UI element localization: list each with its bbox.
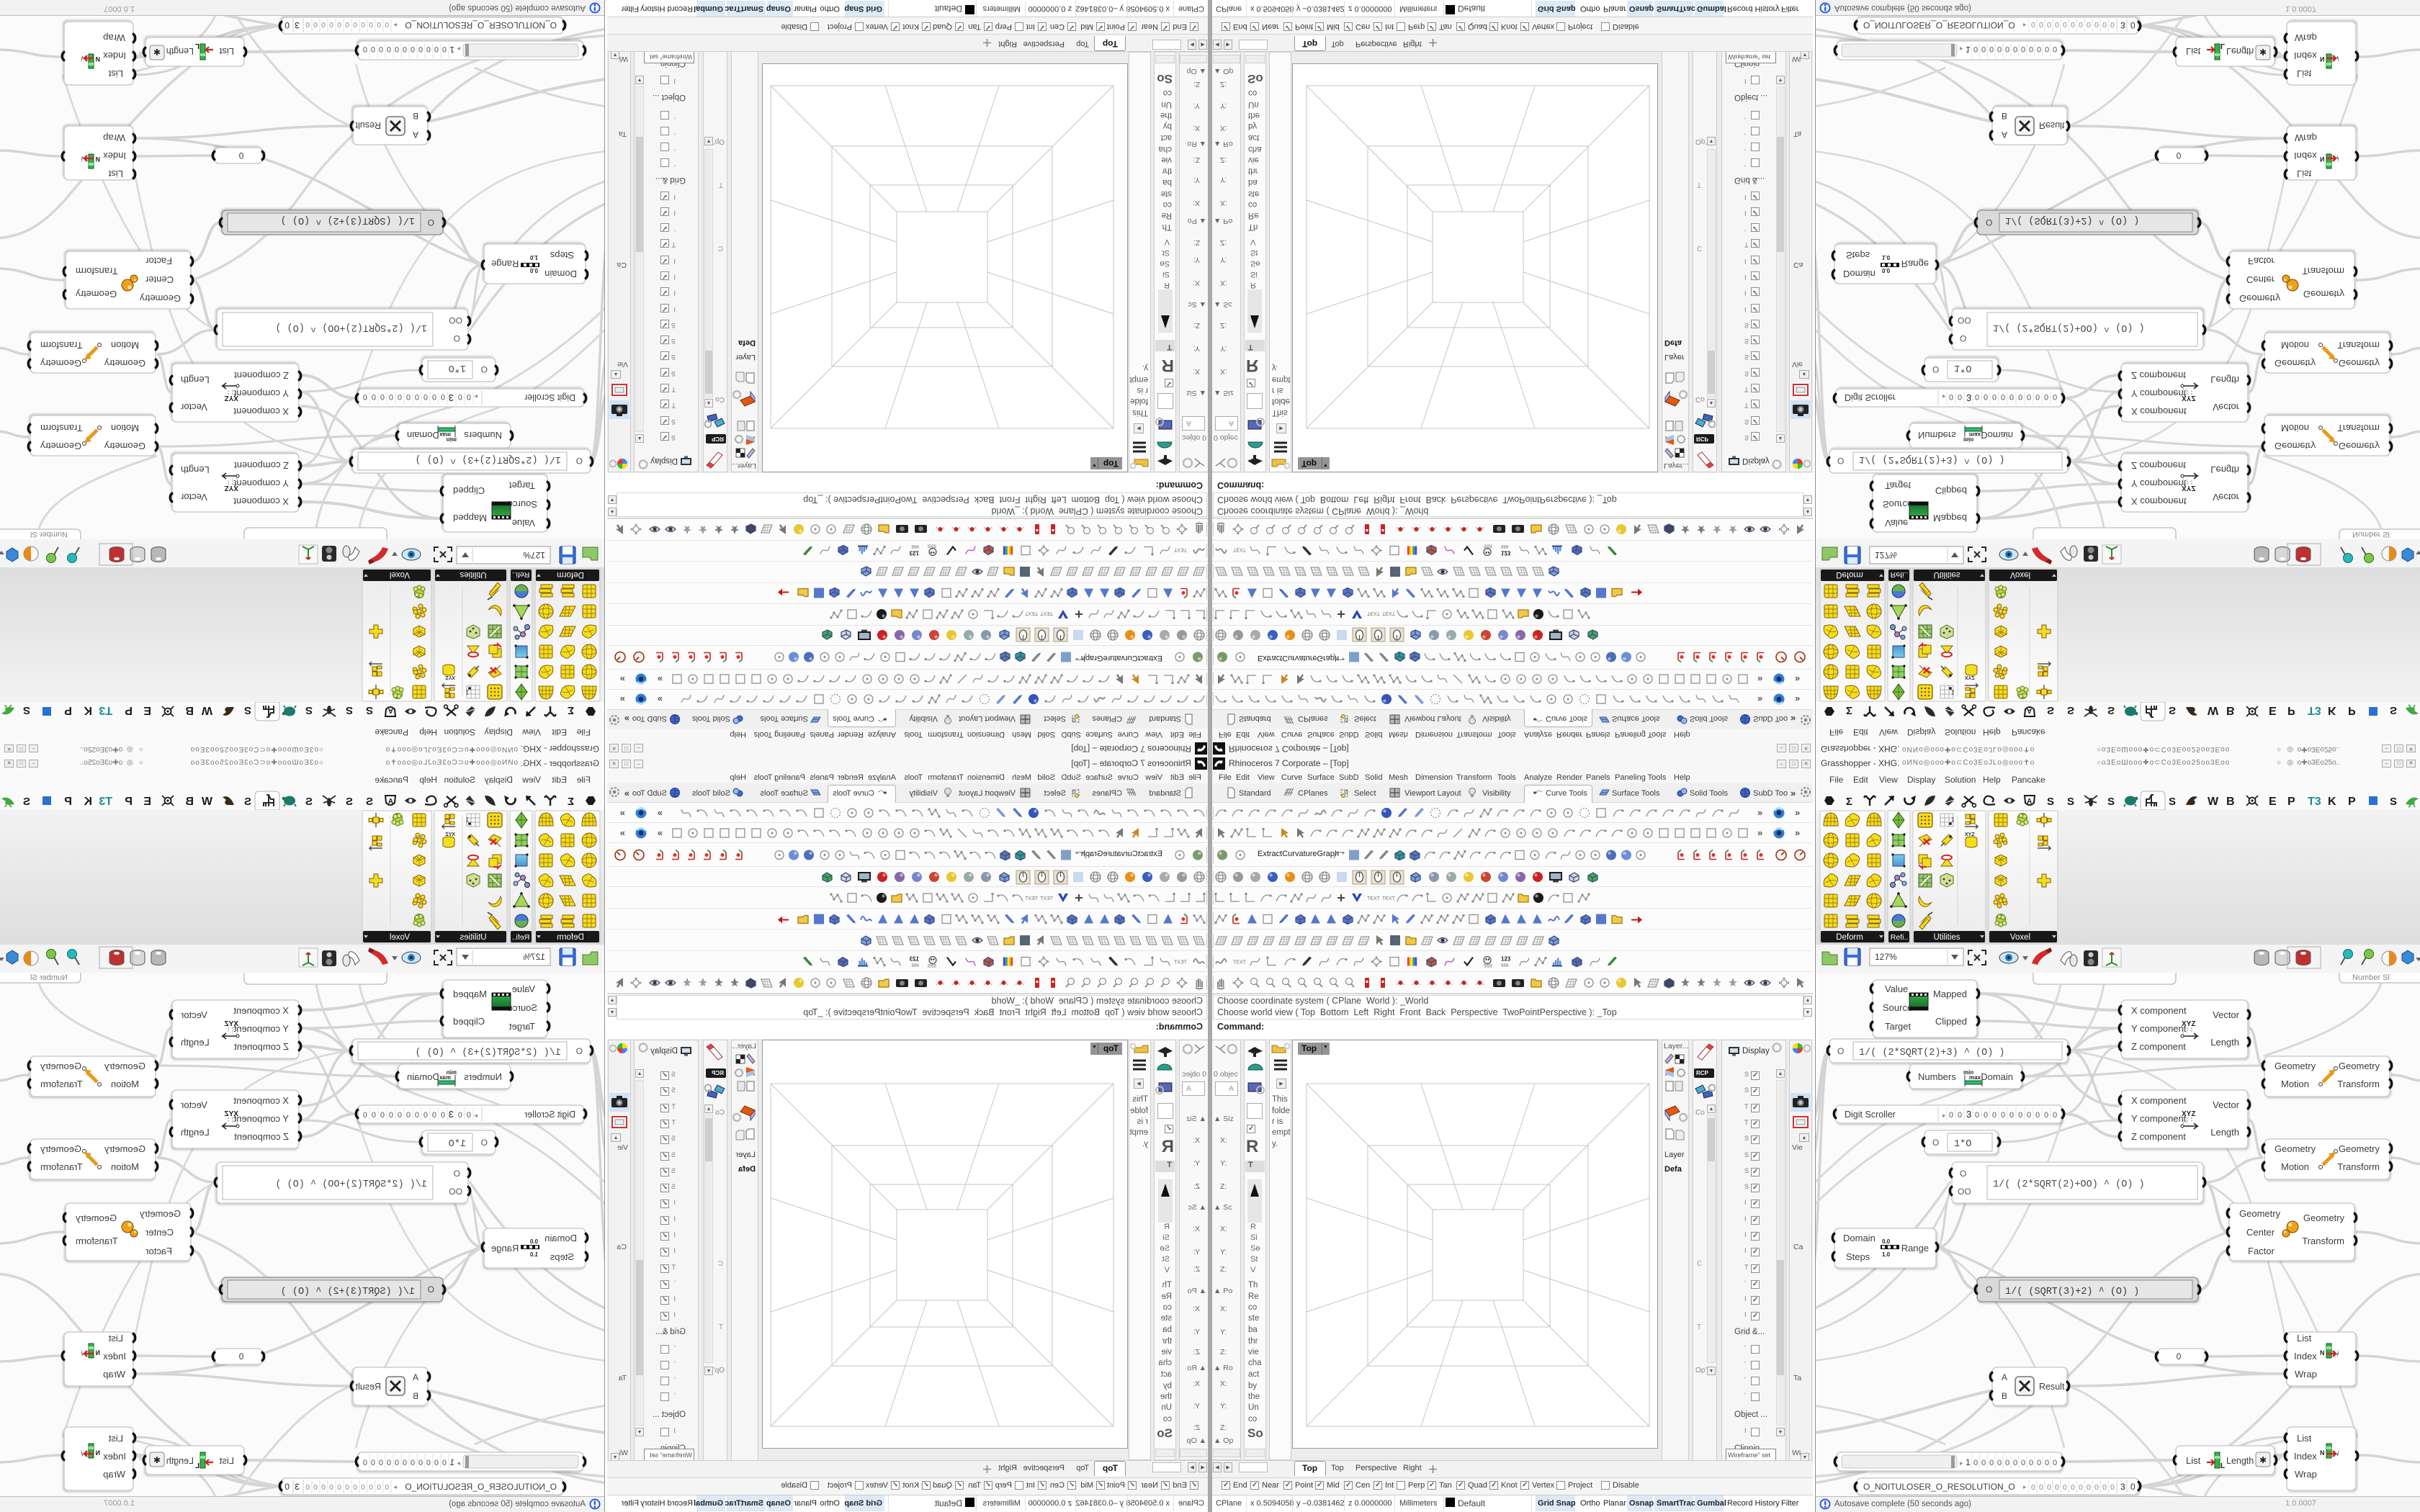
svg-text:sss: sss [911, 963, 919, 968]
svg-text:0: 0 [371, 45, 375, 53]
svg-text:P: P [64, 796, 72, 808]
svg-text:1/( (2*SQRT(2)+3) ^ (O) ): 1/( (2*SQRT(2)+3) ^ (O) ) [415, 454, 561, 464]
svg-text:Z component: Z component [234, 1041, 289, 1052]
svg-text:O: O [1932, 364, 1939, 374]
svg-text:0: 0 [2037, 1459, 2041, 1467]
svg-text:O: O [1837, 1046, 1844, 1056]
svg-text:0: 0 [377, 20, 381, 29]
svg-text:0: 0 [1973, 45, 1978, 53]
svg-text:N: N [96, 156, 101, 163]
svg-text:✱: ✱ [153, 1455, 161, 1465]
svg-text:0: 0 [2102, 1483, 2107, 1492]
svg-text:0: 0 [389, 1111, 393, 1120]
svg-text:T3: T3 [99, 704, 112, 716]
svg-text:Y component: Y component [233, 1023, 289, 1034]
svg-text:▸: ▸ [393, 22, 397, 29]
svg-text:E: E [2269, 796, 2277, 808]
svg-text:Transform: Transform [2302, 1236, 2344, 1246]
svg-text:▸: ▸ [2023, 1483, 2027, 1490]
svg-text:0: 0 [2053, 1111, 2057, 1120]
svg-text:0.0: 0.0 [1882, 267, 1891, 274]
svg-text:Transform: Transform [2337, 340, 2380, 351]
svg-text:Source: Source [1883, 499, 1912, 510]
svg-text:0: 0 [1989, 1459, 1994, 1467]
svg-text:W: W [201, 704, 212, 716]
svg-text:S: S [244, 796, 251, 808]
svg-text:0: 0 [337, 20, 341, 29]
svg-text:✱: ✱ [2259, 47, 2267, 57]
svg-text:Index: Index [103, 50, 126, 61]
svg-text:max: max [439, 431, 451, 438]
svg-text:P: P [2348, 704, 2356, 716]
svg-text:Range: Range [491, 258, 519, 269]
svg-text:»: » [1757, 694, 1762, 705]
svg-text:W: W [201, 796, 212, 808]
svg-text:»: » [1795, 827, 1800, 838]
svg-text:0: 0 [442, 45, 447, 53]
svg-text:Length: Length [181, 1127, 210, 1138]
svg-text:Geometry: Geometry [2239, 293, 2281, 304]
svg-text:List: List [108, 168, 123, 179]
svg-text:0: 0 [337, 1483, 341, 1492]
svg-text:XYZ: XYZ [2182, 394, 2195, 402]
svg-text:▸: ▸ [1942, 1112, 1946, 1119]
svg-text:0: 0 [406, 1111, 411, 1120]
svg-text:123: 123 [1501, 956, 1511, 963]
svg-text:O: O [1932, 1138, 1939, 1148]
svg-text:K: K [2328, 796, 2336, 808]
svg-text:Numbers: Numbers [1918, 430, 1956, 441]
svg-text:0: 0 [2029, 45, 2033, 53]
svg-text:SSS: SSS [1484, 544, 1492, 548]
svg-text:max: max [439, 1074, 451, 1081]
svg-text:Clipped: Clipped [1935, 1016, 1967, 1027]
svg-text:»: » [1757, 827, 1762, 838]
svg-text:0: 0 [2031, 1483, 2035, 1492]
svg-text:Center: Center [145, 1227, 174, 1238]
svg-text:Geometry: Geometry [2339, 1061, 2380, 1071]
svg-text:0: 0 [353, 20, 357, 29]
svg-text:TEXT: TEXT [1173, 960, 1187, 966]
svg-text:0: 0 [321, 20, 326, 29]
svg-text:Range: Range [491, 1243, 519, 1254]
svg-text:0: 0 [406, 392, 411, 401]
svg-text:Geometry: Geometry [40, 358, 82, 369]
svg-text:Range: Range [1901, 1243, 1929, 1254]
svg-text:0: 0 [305, 1483, 310, 1492]
svg-text:S: S [366, 704, 373, 716]
svg-text:Number Sl: Number Sl [2352, 973, 2390, 982]
svg-text:Geometry: Geometry [40, 1143, 82, 1154]
svg-text:0: 0 [387, 45, 391, 53]
svg-text:Utilities: Utilities [460, 570, 486, 579]
svg-text:Vector: Vector [180, 1099, 207, 1110]
svg-text:1: 1 [465, 689, 469, 696]
svg-text:Z component: Z component [234, 370, 289, 381]
svg-text:0: 0 [415, 1111, 419, 1120]
svg-text:0: 0 [377, 1483, 381, 1492]
svg-text:0: 0 [2009, 1111, 2014, 1120]
svg-text:0: 0 [1997, 45, 2002, 53]
svg-text:Factor: Factor [2248, 256, 2275, 266]
svg-text:N: N [2320, 1349, 2325, 1356]
svg-text:Y component: Y component [233, 388, 289, 399]
svg-text:max: max [1969, 1074, 1981, 1081]
svg-text:1: 1 [1951, 689, 1955, 696]
svg-text:0: 0 [361, 20, 365, 29]
svg-text:S: S [2067, 796, 2074, 808]
svg-text:0: 0 [1958, 1111, 1962, 1120]
svg-text:✱: ✱ [2259, 1455, 2267, 1465]
svg-text:Clipped: Clipped [1935, 485, 1967, 496]
svg-text:N: N [2320, 1449, 2325, 1457]
svg-text:TEXT: TEXT [1233, 547, 1247, 552]
svg-text:127%: 127% [523, 550, 545, 560]
svg-text:Index: Index [103, 1351, 126, 1362]
svg-text:Motion: Motion [2281, 1161, 2309, 1172]
svg-text:Geometry: Geometry [104, 441, 145, 451]
svg-text:Length: Length [181, 1037, 210, 1048]
svg-text:XYZ: XYZ [2182, 1020, 2195, 1028]
svg-text:P: P [2287, 796, 2295, 808]
svg-text:Wrap: Wrap [2295, 32, 2317, 43]
svg-text:0: 0 [371, 1459, 375, 1467]
svg-text:0: 0 [2055, 20, 2059, 29]
svg-text:0: 0 [329, 1483, 333, 1492]
svg-text:0: 0 [403, 45, 407, 53]
svg-text:0: 0 [395, 45, 399, 53]
svg-text:0: 0 [284, 1482, 290, 1492]
svg-text:0: 0 [423, 392, 428, 401]
svg-text:0: 0 [2027, 1111, 2031, 1120]
svg-text:TEXT: TEXT [1173, 547, 1187, 552]
svg-text:Target: Target [508, 480, 535, 491]
svg-text:0: 0 [2021, 1459, 2025, 1467]
svg-text:XYZ: XYZ [225, 1110, 238, 1118]
svg-text:sss: sss [1501, 544, 1509, 549]
svg-text:Domain: Domain [407, 430, 439, 441]
svg-text:1/( (2*SQRT(2)+OO) ^ (O) ): 1/( (2*SQRT(2)+OO) ^ (O) ) [1993, 322, 2145, 333]
svg-text:1: 1 [1966, 1457, 1971, 1467]
svg-text:0: 0 [395, 1459, 399, 1467]
svg-text:0: 0 [2071, 1483, 2075, 1492]
svg-text:1*O: 1*O [1954, 1139, 1971, 1150]
svg-text:Factor: Factor [145, 256, 172, 266]
svg-text:W: W [2208, 704, 2219, 716]
svg-text:0: 0 [1997, 1459, 2002, 1467]
svg-text:TEXT: TEXT [1367, 896, 1381, 901]
svg-text:Refi..: Refi.. [512, 570, 530, 579]
svg-text:List: List [2297, 68, 2312, 79]
svg-text:Refi..: Refi.. [512, 933, 530, 942]
svg-text:123: 123 [909, 550, 919, 557]
svg-text:0: 0 [2047, 1483, 2051, 1492]
svg-text:Domain: Domain [544, 1233, 577, 1243]
svg-text:Number Sl: Number Sl [30, 973, 68, 982]
svg-text:▸: ▸ [457, 45, 460, 53]
svg-text:Wrap: Wrap [103, 32, 125, 43]
svg-text:1*O: 1*O [1954, 362, 1971, 373]
svg-text:O_NOITULOSER_O_RESOLUTION_O: O_NOITULOSER_O_RESOLUTION_O [405, 20, 557, 30]
svg-text:0.0: 0.0 [1882, 1238, 1891, 1245]
svg-text:0: 0 [2001, 1111, 2005, 1120]
svg-text:127%: 127% [523, 952, 545, 962]
svg-text:0: 0 [434, 1459, 439, 1467]
svg-text:Y component: Y component [2131, 1023, 2187, 1034]
svg-text:0: 0 [1984, 392, 1988, 401]
svg-text:Center: Center [2246, 274, 2275, 285]
svg-text:Geometry: Geometry [2303, 289, 2345, 300]
svg-text:L: L [195, 1462, 200, 1470]
svg-text:0: 0 [2094, 1483, 2099, 1492]
svg-text:B: B [413, 111, 418, 121]
svg-text:0: 0 [2037, 45, 2041, 53]
svg-text:Voxel: Voxel [390, 933, 410, 942]
svg-text:0: 0 [2130, 1482, 2136, 1492]
svg-text:0: 0 [361, 1483, 365, 1492]
svg-text:Utilities: Utilities [460, 933, 486, 942]
svg-text:Vector: Vector [2213, 1099, 2240, 1110]
svg-text:Motion: Motion [2281, 423, 2309, 433]
svg-text:Σ: Σ [1846, 704, 1852, 716]
svg-text:Geometry: Geometry [139, 293, 181, 304]
svg-text:List: List [2297, 1333, 2312, 1344]
svg-text:Digit Scroller: Digit Scroller [1845, 1110, 1896, 1120]
svg-text:Vector: Vector [180, 492, 207, 503]
svg-text:Motion: Motion [111, 1161, 139, 1172]
svg-text:S: S [2169, 796, 2176, 808]
svg-text:0: 0 [321, 1483, 326, 1492]
svg-text:A: A [413, 130, 418, 140]
svg-text:Geometry: Geometry [2339, 441, 2380, 451]
svg-text:S: S [2047, 796, 2054, 808]
svg-text:Range: Range [1901, 258, 1929, 269]
svg-text:3: 3 [449, 392, 454, 403]
svg-text:Z component: Z component [2131, 460, 2186, 471]
svg-text:0: 0 [385, 1483, 389, 1492]
svg-text:0: 0 [2177, 1351, 2182, 1362]
svg-text:List: List [219, 46, 234, 57]
svg-text:0: 0 [2035, 392, 2040, 401]
svg-text:K: K [84, 796, 92, 808]
svg-text:O: O [576, 1046, 583, 1056]
svg-text:3: 3 [2120, 20, 2125, 30]
svg-text:0: 0 [2053, 392, 2057, 401]
svg-text:»: » [658, 807, 663, 818]
svg-text:Length: Length [2226, 1456, 2254, 1466]
svg-text:0: 0 [403, 1459, 407, 1467]
svg-text:»: » [620, 807, 625, 818]
svg-text:0: 0 [418, 1459, 423, 1467]
svg-text:OO: OO [449, 315, 462, 325]
svg-text:Geometry: Geometry [104, 1143, 145, 1154]
svg-text:Target: Target [508, 1021, 535, 1032]
svg-text:A: A [2027, 798, 2032, 806]
svg-text:0: 0 [2031, 20, 2035, 29]
svg-text:123: 123 [1501, 550, 1511, 557]
svg-text:▸: ▸ [474, 1112, 478, 1119]
svg-text:Σ: Σ [1846, 796, 1852, 808]
svg-text:Factor: Factor [2248, 1246, 2275, 1256]
svg-text:▸: ▸ [457, 1459, 460, 1467]
svg-text:Z component: Z component [234, 460, 289, 471]
svg-text:Transform: Transform [2337, 1079, 2380, 1089]
svg-text:List: List [108, 1433, 123, 1444]
svg-text:N: N [2320, 156, 2325, 163]
svg-text:XYZ: XYZ [2182, 1110, 2195, 1118]
svg-text:K: K [84, 704, 92, 716]
svg-text:Transform: Transform [2337, 1161, 2380, 1172]
svg-text:E: E [143, 704, 151, 716]
svg-text:Motion: Motion [2281, 1079, 2309, 1089]
svg-text:Deform: Deform [557, 570, 584, 579]
svg-text:3: 3 [1966, 1109, 1971, 1120]
svg-text:sss: sss [1501, 963, 1509, 968]
svg-text:0: 0 [426, 1459, 431, 1467]
svg-text:P: P [125, 704, 133, 716]
svg-text:Wrap: Wrap [2295, 132, 2317, 143]
svg-text:0: 0 [2045, 1459, 2049, 1467]
svg-text:1: 1 [449, 45, 454, 55]
svg-text:K: K [2328, 704, 2336, 716]
svg-text:0: 0 [2055, 1483, 2059, 1492]
svg-text:0: 0 [369, 20, 373, 29]
svg-text:Center: Center [2246, 1227, 2275, 1238]
svg-text:1: 1 [465, 816, 469, 823]
svg-text:O: O [481, 364, 488, 374]
svg-text:1/( (2*SQRT(2)+OO) ^ (O) ): 1/( (2*SQRT(2)+OO) ^ (O) ) [275, 322, 427, 333]
svg-text:1.0: 1.0 [529, 254, 538, 261]
svg-text:OO: OO [1958, 1187, 1971, 1197]
svg-text:0: 0 [2177, 150, 2182, 161]
svg-text:X component: X component [233, 1095, 289, 1106]
svg-text:max: max [1969, 431, 1981, 438]
svg-text:Length: Length [2210, 1037, 2239, 1048]
svg-text:OO: OO [449, 1187, 462, 1197]
svg-text:Y component: Y component [2131, 1113, 2187, 1124]
svg-text:0: 0 [363, 392, 367, 401]
svg-text:O: O [1960, 333, 1966, 343]
svg-text:Vector: Vector [2213, 402, 2240, 413]
svg-text:0: 0 [432, 392, 436, 401]
svg-text:Y component: Y component [233, 1113, 289, 1124]
svg-text:1/( (SQRT(3)+2) ^ (O) ): 1/( (SQRT(3)+2) ^ (O) ) [2005, 215, 2139, 225]
svg-text:0: 0 [2053, 1459, 2057, 1467]
svg-text:0: 0 [1992, 1111, 1996, 1120]
svg-text:P: P [64, 704, 72, 716]
svg-text:✱: ✱ [153, 47, 161, 57]
svg-text:L: L [195, 42, 200, 50]
svg-text:0: 0 [2053, 45, 2057, 53]
svg-text:»: » [658, 827, 663, 838]
svg-text:1/( (2*SQRT(2)+3) ^ (O) ): 1/( (2*SQRT(2)+3) ^ (O) ) [415, 1048, 561, 1058]
svg-text:Factor: Factor [145, 1246, 172, 1256]
svg-text:0: 0 [2035, 1111, 2040, 1120]
svg-text:Wrap: Wrap [2295, 1469, 2317, 1480]
svg-text:0.0: 0.0 [529, 1238, 538, 1245]
svg-text:Utilities: Utilities [1933, 933, 1960, 942]
svg-text:TEXT: TEXT [1039, 896, 1053, 901]
svg-text:Index: Index [103, 150, 126, 161]
svg-text:0: 0 [313, 1483, 318, 1492]
svg-text:0: 0 [1981, 45, 1986, 53]
svg-text:X component: X component [233, 496, 289, 507]
svg-text:Domain: Domain [1843, 1233, 1875, 1243]
svg-text:0: 0 [2079, 1483, 2083, 1492]
svg-text:0: 0 [2087, 1483, 2091, 1492]
svg-text:TEXT: TEXT [1024, 611, 1038, 616]
svg-text:O: O [428, 1284, 434, 1295]
svg-text:0: 0 [434, 45, 439, 53]
svg-text:0: 0 [411, 45, 415, 53]
svg-text:3: 3 [295, 1482, 300, 1492]
svg-text:TEXT: TEXT [1039, 611, 1053, 616]
svg-text:TEXT: TEXT [1233, 960, 1247, 966]
svg-text:0: 0 [2045, 45, 2049, 53]
svg-text:Index: Index [103, 1451, 126, 1462]
svg-text:0: 0 [2110, 20, 2115, 29]
svg-text:Geometry: Geometry [104, 1061, 145, 1071]
svg-text:Z component: Z component [2131, 1131, 2186, 1142]
svg-text:0: 0 [1981, 1459, 1986, 1467]
svg-text:Digit Scroller: Digit Scroller [524, 392, 575, 402]
svg-text:1.0: 1.0 [1882, 1251, 1891, 1258]
svg-text:0: 0 [458, 392, 462, 401]
svg-text:Length: Length [181, 374, 210, 385]
svg-text:O: O [481, 1138, 488, 1148]
svg-text:0: 0 [313, 20, 318, 29]
svg-text:»: » [620, 674, 625, 685]
svg-text:3: 3 [2120, 1482, 2125, 1492]
svg-text:Vector: Vector [180, 1009, 207, 1020]
svg-text:S: S [2047, 704, 2054, 716]
svg-text:1/( (2*SQRT(2)+OO) ^ (O) ): 1/( (2*SQRT(2)+OO) ^ (O) ) [275, 1179, 427, 1190]
svg-text:S: S [2107, 796, 2115, 808]
svg-text:XYZ: XYZ [445, 675, 455, 680]
svg-text:Transform: Transform [40, 340, 83, 351]
svg-text:0: 0 [2039, 20, 2043, 29]
svg-text:Mapped: Mapped [453, 513, 487, 523]
svg-text:0: 0 [2005, 1459, 2009, 1467]
svg-text:L: L [2220, 1462, 2225, 1470]
svg-text:XYZ: XYZ [225, 394, 238, 402]
svg-text:Steps: Steps [1846, 250, 1870, 261]
svg-text:List: List [108, 1333, 123, 1344]
svg-text:Length: Length [2210, 464, 2239, 475]
svg-text:S: S [2107, 704, 2115, 716]
svg-text:A: A [2002, 130, 2007, 140]
svg-text:Geometry: Geometry [2303, 1212, 2345, 1223]
svg-text:Length: Length [181, 464, 210, 475]
svg-text:0: 0 [1973, 1459, 1978, 1467]
svg-text:Deform: Deform [1836, 570, 1863, 579]
svg-text:0: 0 [372, 1111, 376, 1120]
svg-text:Clipped: Clipped [453, 1016, 485, 1027]
svg-text:Value: Value [1885, 518, 1908, 528]
svg-text:0: 0 [418, 45, 423, 53]
svg-text:»: » [658, 674, 663, 685]
svg-text:Numbers: Numbers [464, 1071, 502, 1082]
svg-text:Utilities: Utilities [1933, 570, 1960, 579]
svg-text:0: 0 [372, 392, 376, 401]
svg-text:0: 0 [345, 20, 349, 29]
svg-text:0: 0 [369, 1483, 373, 1492]
svg-text:127%: 127% [1875, 550, 1897, 560]
svg-text:Numbers: Numbers [1918, 1071, 1956, 1082]
svg-text:Clipped: Clipped [453, 485, 485, 496]
svg-text:Length: Length [2226, 46, 2254, 56]
svg-text:0: 0 [2130, 20, 2136, 30]
